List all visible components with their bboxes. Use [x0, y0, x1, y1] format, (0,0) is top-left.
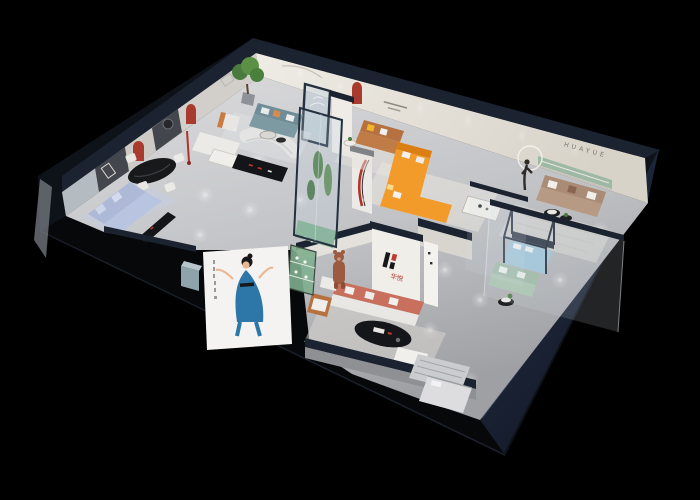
- round-wall-art: [163, 119, 173, 129]
- table-plant-2: [564, 213, 568, 217]
- white-door-panel: [424, 241, 438, 307]
- round-coffee-table: [260, 131, 276, 139]
- showroom-render: HUAYUE: [0, 0, 700, 500]
- woman-face: [242, 261, 249, 268]
- green-display-cabinet: [288, 245, 316, 295]
- red-arch-niche-2: [186, 104, 196, 124]
- isometric-scene: HUAYUE: [0, 0, 700, 500]
- table-plant: [348, 137, 352, 141]
- glass-terrarium: [294, 108, 342, 248]
- facade-poster: [203, 246, 292, 350]
- blue-gray-cube: [181, 261, 202, 291]
- teddy-bear-figure: [333, 250, 345, 289]
- round-side-table: [276, 137, 286, 142]
